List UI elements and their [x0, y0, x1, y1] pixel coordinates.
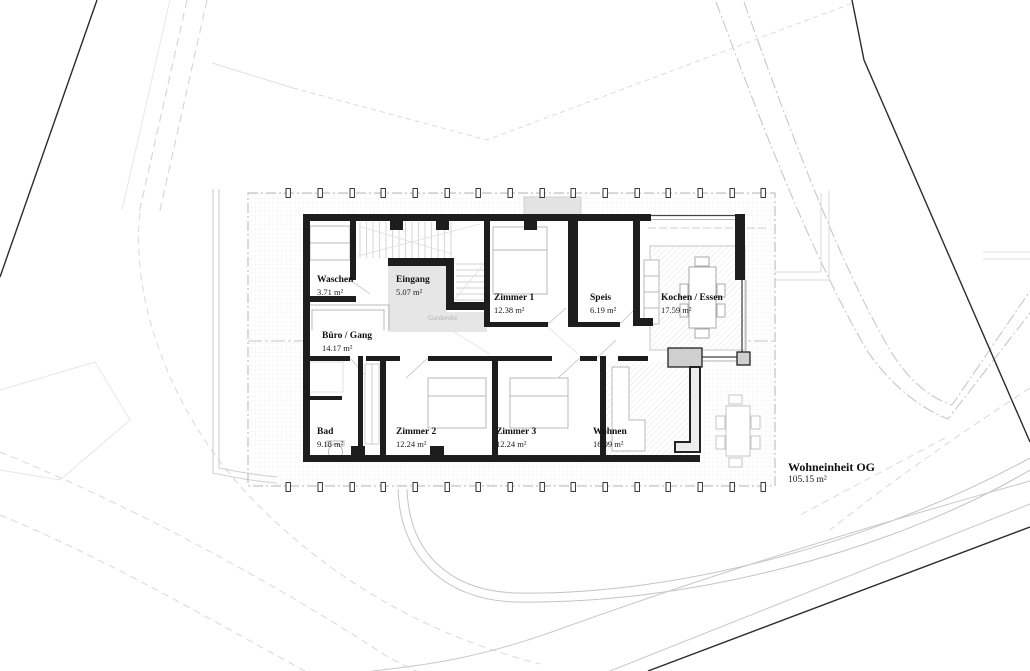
bed-zimmer3 — [510, 378, 568, 428]
wall-zimmer1-west — [484, 214, 490, 327]
window-jamb — [390, 221, 403, 230]
bed-zimmer1 — [493, 227, 547, 294]
corner-post — [737, 352, 750, 365]
wall-zimmer1-south — [490, 322, 548, 327]
wall-under-stairs — [388, 258, 454, 266]
path-edge-dashed — [159, 0, 207, 215]
wall-corridor-seg — [580, 356, 597, 361]
pillar — [668, 348, 702, 367]
window-jamb — [524, 221, 537, 230]
floor-plan-drawing — [0, 0, 1030, 671]
wall-zimmer2-zimmer3 — [492, 356, 498, 455]
wall-speis-east — [633, 214, 640, 322]
wall-corridor-seg — [428, 356, 552, 361]
wall-east-column — [735, 214, 745, 280]
road-edge — [610, 504, 1030, 671]
walkway — [775, 191, 829, 280]
entry-floor — [388, 266, 446, 332]
contour-line — [830, 388, 1030, 530]
wall-corridor-seg — [303, 356, 350, 361]
garderobe-annotation: Garderobe — [428, 314, 458, 322]
window-jamb — [436, 221, 449, 230]
contour-line — [0, 515, 305, 671]
building — [303, 214, 768, 467]
canopy — [524, 197, 581, 216]
contour-line — [800, 438, 945, 515]
bed-zimmer2 — [428, 378, 486, 428]
wall-speis-south — [578, 322, 620, 327]
contour-outline — [0, 362, 130, 480]
road-edge — [398, 470, 1030, 602]
property-boundary — [852, 0, 1030, 442]
floor-plan-canvas: Waschen 3.71 m² Eingang 5.07 m² Zimmer 1… — [0, 0, 1030, 671]
wall-bad-divider — [306, 396, 342, 400]
wall-west — [303, 214, 310, 462]
wall-garderobe — [446, 302, 490, 310]
wall-south — [303, 455, 700, 462]
wall-niche-east — [380, 356, 386, 455]
wall-bad-east — [358, 356, 363, 455]
walkway — [983, 252, 1030, 259]
window-jamb — [430, 446, 444, 455]
wall-waschen-south — [303, 296, 356, 302]
wall-waschen-east — [350, 214, 356, 280]
washer-counter — [310, 226, 350, 260]
wall-kitchen-stub — [633, 318, 653, 326]
road-boundary — [648, 527, 1030, 671]
parcel-line — [293, 3, 853, 140]
property-boundary — [0, 0, 97, 277]
parcel-line — [212, 63, 293, 88]
wall-corridor-seg — [618, 356, 648, 361]
window-jamb — [351, 446, 365, 455]
pantry-shelf — [644, 260, 659, 324]
wall-zimmer3-wohnen — [600, 356, 606, 455]
wall-zimmer1-speis — [568, 214, 578, 327]
